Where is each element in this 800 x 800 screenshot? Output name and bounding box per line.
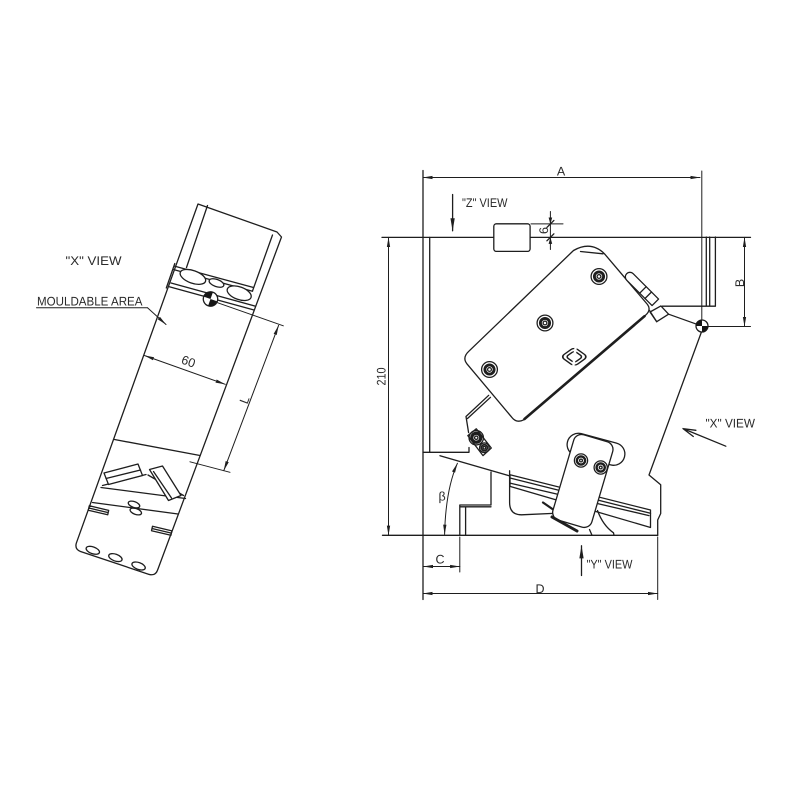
svg-text:MOULDABLE AREA: MOULDABLE AREA xyxy=(37,295,143,309)
svg-text:β: β xyxy=(439,490,446,504)
svg-text:C: C xyxy=(435,553,444,567)
svg-text:"Y" VIEW: "Y" VIEW xyxy=(587,558,633,572)
svg-text:L: L xyxy=(237,394,253,405)
svg-text:"X" VIEW: "X" VIEW xyxy=(66,254,122,268)
svg-text:"Z" VIEW: "Z" VIEW xyxy=(462,196,508,210)
svg-text:"X" VIEW: "X" VIEW xyxy=(706,417,756,431)
svg-text:A: A xyxy=(557,165,566,179)
svg-text:B: B xyxy=(733,279,747,287)
svg-text:210: 210 xyxy=(375,367,389,385)
svg-text:6: 6 xyxy=(537,227,551,234)
svg-text:D: D xyxy=(535,582,544,596)
